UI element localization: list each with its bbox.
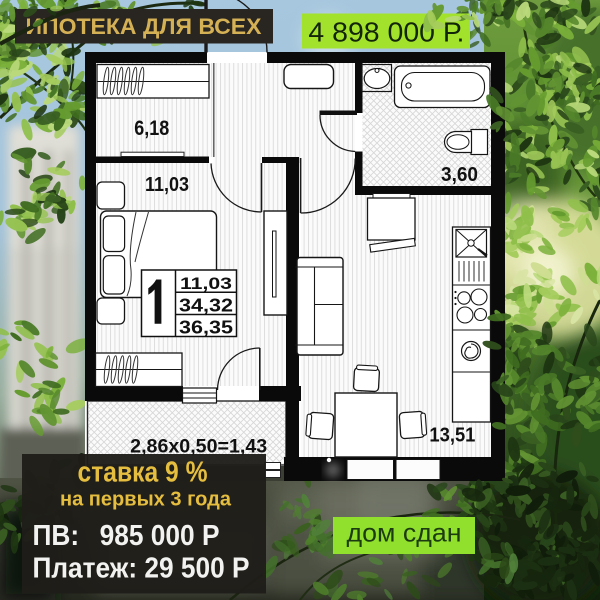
svg-text:ставка 9 %: ставка 9 % xyxy=(78,457,208,489)
svg-text:4 898 000 Р.: 4 898 000 Р. xyxy=(308,17,464,48)
svg-text:11,03: 11,03 xyxy=(180,274,232,293)
svg-text:дом сдан: дом сдан xyxy=(347,518,462,548)
svg-text:на первых 3 года: на первых 3 года xyxy=(60,489,232,511)
svg-text:13,51: 13,51 xyxy=(429,424,475,447)
svg-text:11,03: 11,03 xyxy=(145,174,189,196)
svg-text:Платеж: 29 500 Р: Платеж: 29 500 Р xyxy=(33,553,250,585)
svg-text:ИПОТЕКА ДЛЯ ВСЕХ: ИПОТЕКА ДЛЯ ВСЕХ xyxy=(26,14,262,39)
svg-text:34,32: 34,32 xyxy=(179,295,233,316)
svg-text:6,18: 6,18 xyxy=(134,117,169,140)
svg-text:ПВ: 985 000 Р: ПВ: 985 000 Р xyxy=(33,520,220,552)
svg-text:3,60: 3,60 xyxy=(441,163,478,186)
svg-text:36,35: 36,35 xyxy=(179,317,233,338)
